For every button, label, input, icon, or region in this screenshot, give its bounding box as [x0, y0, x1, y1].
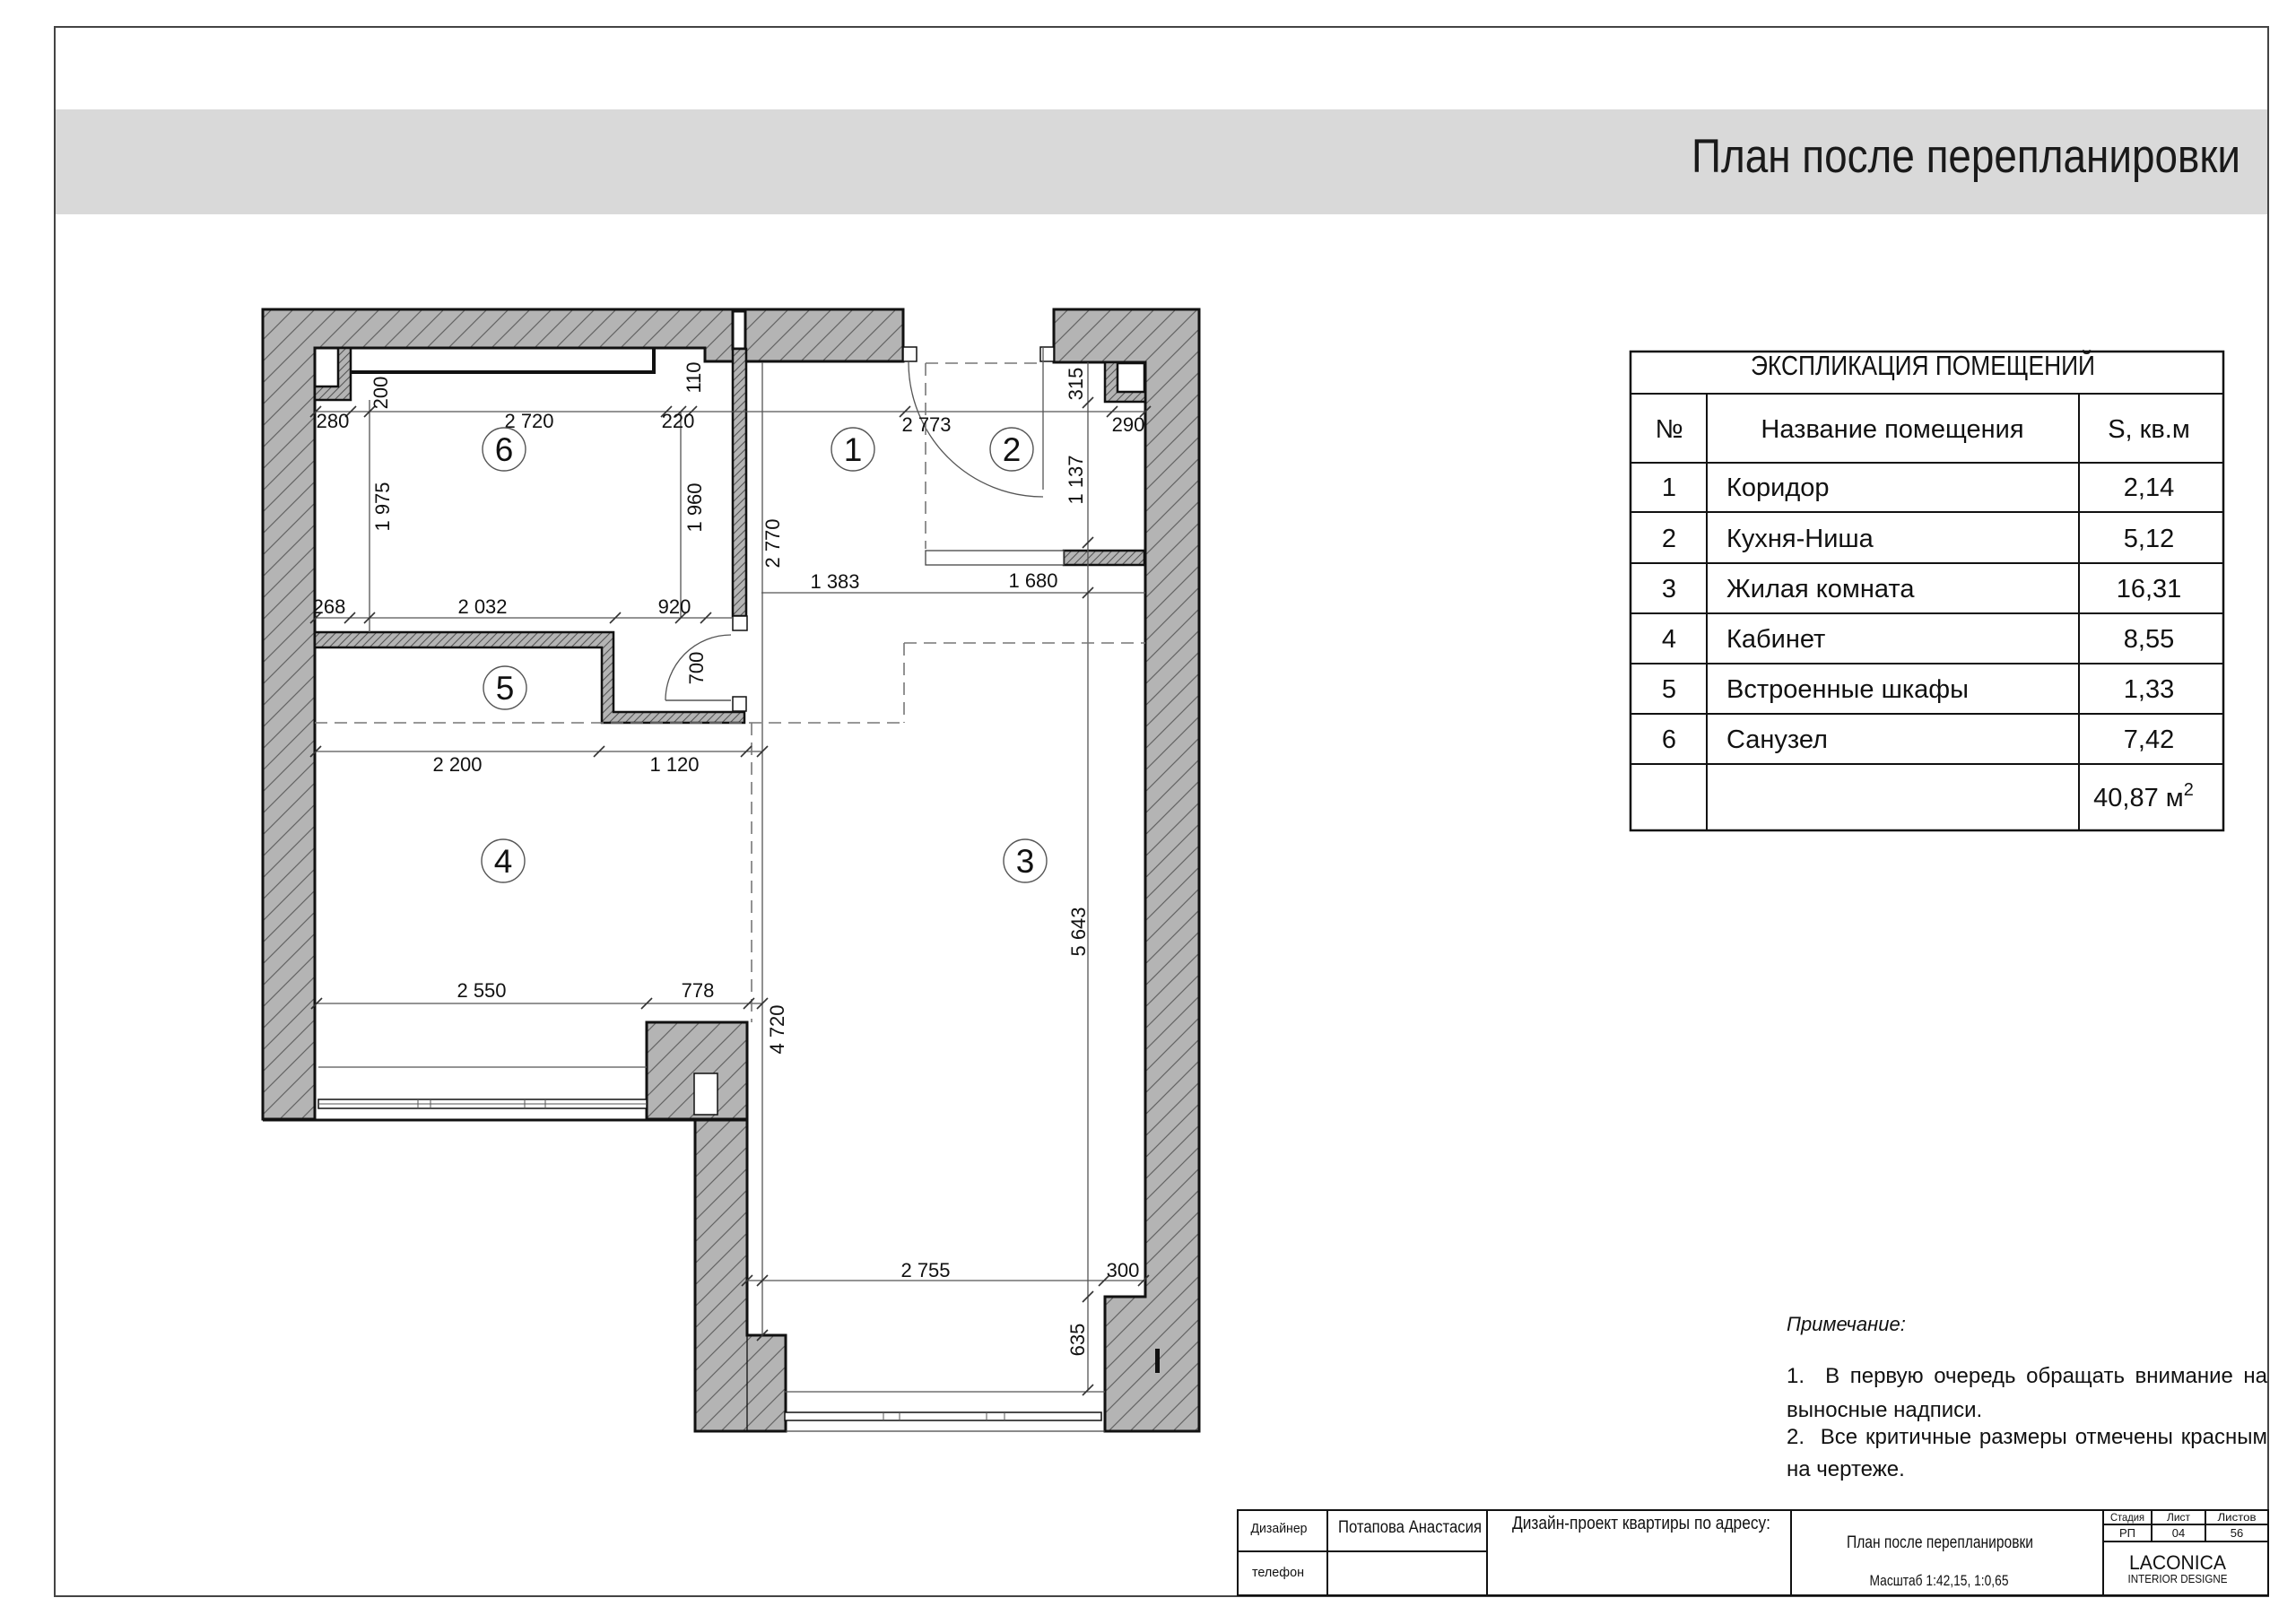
svg-text:№: № [1655, 415, 1683, 444]
svg-text:ЭКСПЛИКАЦИЯ ПОМЕЩЕНИЙ: ЭКСПЛИКАЦИЯ ПОМЕЩЕНИЙ [1751, 349, 2095, 381]
svg-text:5,12: 5,12 [2124, 525, 2174, 553]
svg-text:1 960: 1 960 [683, 482, 706, 532]
svg-text:8,55: 8,55 [2124, 625, 2174, 654]
svg-text:40,87 м2: 40,87 м2 [2093, 780, 2194, 812]
svg-text:2 773: 2 773 [901, 413, 951, 436]
svg-text:778: 778 [682, 979, 715, 1002]
svg-text:200: 200 [370, 377, 392, 410]
svg-text:56: 56 [2231, 1526, 2243, 1540]
svg-text:268: 268 [313, 595, 346, 618]
svg-text:635: 635 [1066, 1324, 1089, 1357]
svg-text:Коридор: Коридор [1726, 473, 1830, 502]
svg-text:920: 920 [658, 595, 691, 618]
svg-text:1 137: 1 137 [1065, 455, 1087, 504]
svg-text:290: 290 [1112, 413, 1145, 436]
svg-text:Жилая комната: Жилая комната [1726, 575, 1915, 604]
svg-text:6: 6 [495, 431, 514, 468]
svg-text:4: 4 [494, 843, 513, 880]
svg-text:1: 1 [844, 431, 863, 468]
svg-text:5 643: 5 643 [1067, 907, 1090, 956]
svg-text:220: 220 [662, 410, 695, 432]
svg-text:3: 3 [1662, 575, 1676, 604]
svg-text:2 550: 2 550 [457, 979, 506, 1002]
svg-text:Санузел: Санузел [1726, 725, 1828, 754]
svg-text:2: 2 [1662, 525, 1676, 553]
svg-text:4: 4 [1662, 625, 1676, 654]
svg-text:5: 5 [1662, 675, 1676, 704]
svg-text:1 383: 1 383 [810, 570, 859, 593]
svg-text:300: 300 [1107, 1259, 1140, 1281]
svg-text:Масштаб 1:42,15, 1:0,65: Масштаб 1:42,15, 1:0,65 [1870, 1572, 2009, 1589]
svg-text:INTERIOR DESIGNE: INTERIOR DESIGNE [2128, 1572, 2228, 1585]
svg-text:План после перепланировки: План после перепланировки [1692, 130, 2240, 183]
svg-text:110: 110 [683, 361, 705, 393]
svg-text:Потапова Анастасия: Потапова Анастасия [1338, 1518, 1482, 1537]
svg-text:2 200: 2 200 [432, 753, 482, 776]
svg-text:Лист: Лист [2167, 1511, 2191, 1524]
svg-text:Дизайнер: Дизайнер [1251, 1521, 1308, 1536]
svg-text:5: 5 [496, 670, 515, 707]
svg-text:LACONICA: LACONICA [2129, 1551, 2226, 1574]
svg-text:280: 280 [317, 410, 350, 432]
svg-text:315: 315 [1065, 368, 1087, 401]
svg-text:1 975: 1 975 [371, 482, 394, 531]
svg-text:Кухня-Ниша: Кухня-Ниша [1726, 525, 1874, 553]
svg-text:7,42: 7,42 [2124, 725, 2174, 754]
svg-text:План после перепланировки: План после перепланировки [1847, 1533, 2033, 1552]
svg-text:Встроенные шкафы: Встроенные шкафы [1726, 675, 1969, 704]
svg-text:16,31: 16,31 [2117, 575, 2182, 604]
svg-text:Листов: Листов [2218, 1511, 2257, 1524]
svg-text:700: 700 [685, 652, 708, 685]
svg-text:Название помещения: Название помещения [1761, 415, 2023, 444]
svg-text:1 680: 1 680 [1008, 569, 1057, 592]
svg-text:04: 04 [2172, 1526, 2185, 1540]
svg-text:2,14: 2,14 [2124, 473, 2174, 502]
svg-text:Кабинет: Кабинет [1726, 625, 1825, 654]
svg-text:1: 1 [1662, 473, 1676, 502]
svg-text:4 720: 4 720 [766, 1004, 788, 1054]
svg-text:3: 3 [1016, 843, 1035, 880]
svg-text:S, кв.м: S, кв.м [2108, 415, 2190, 444]
svg-text:1,33: 1,33 [2124, 675, 2174, 704]
svg-text:2: 2 [1003, 431, 1022, 468]
svg-text:РП: РП [2119, 1526, 2135, 1540]
svg-text:2 755: 2 755 [900, 1259, 950, 1281]
svg-text:2 770: 2 770 [761, 518, 784, 568]
svg-text:телефон: телефон [1252, 1565, 1304, 1580]
svg-text:Дизайн-проект квартиры по адре: Дизайн-проект квартиры по адресу: [1512, 1514, 1770, 1533]
svg-text:Стадия: Стадия [2110, 1511, 2144, 1524]
svg-text:1 120: 1 120 [649, 753, 699, 776]
svg-text:6: 6 [1662, 725, 1676, 754]
svg-text:2 032: 2 032 [457, 595, 507, 618]
